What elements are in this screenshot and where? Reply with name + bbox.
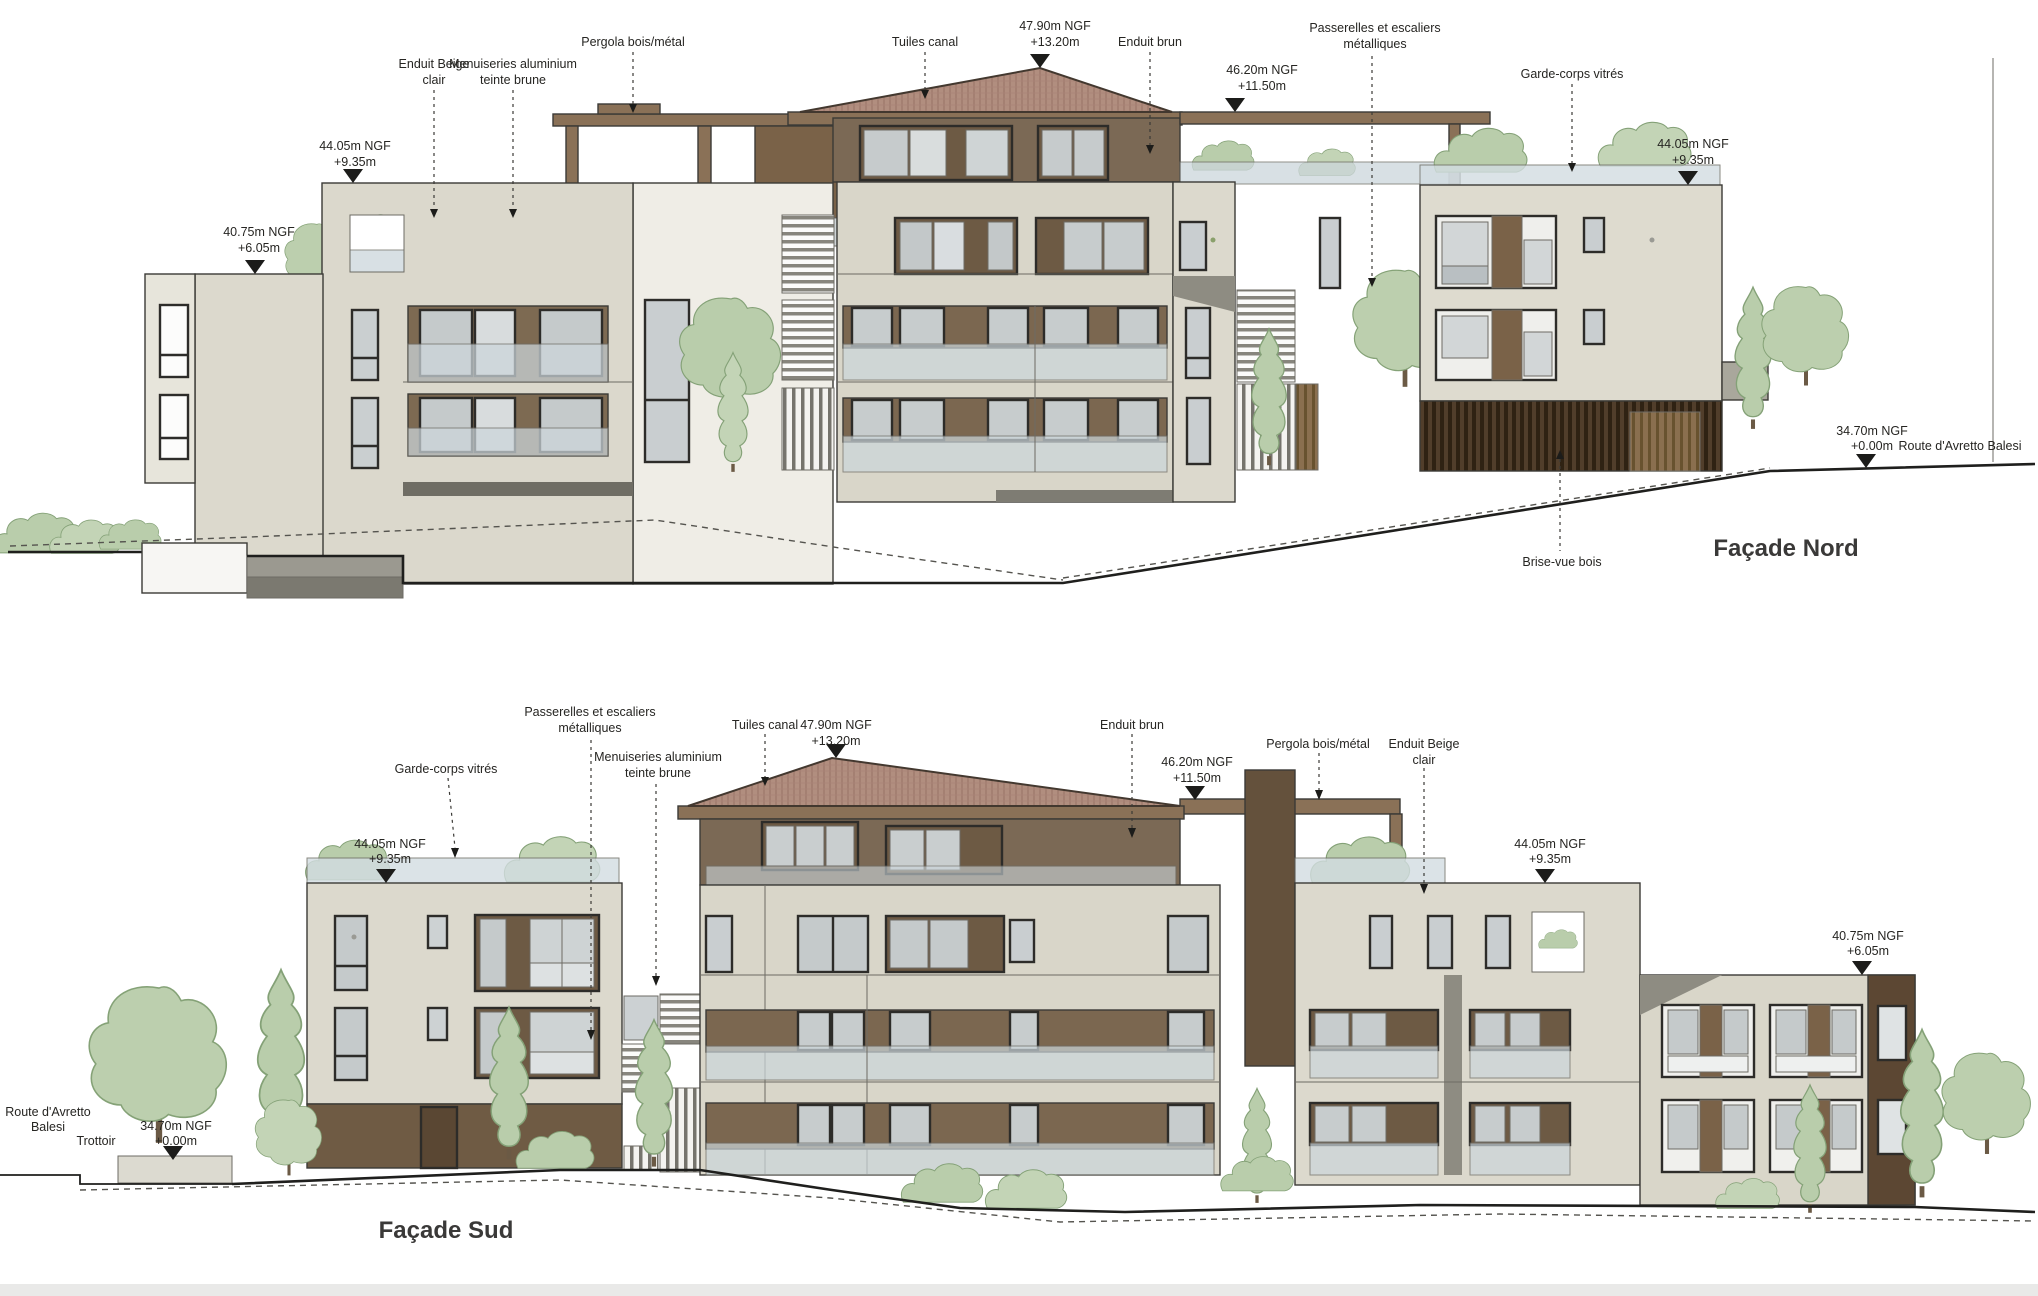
- annotation-garde-corps: Garde-corps vitrés: [1521, 67, 1624, 81]
- annotation-level-3470: 34.70m NGF: [140, 1119, 212, 1133]
- annotation-garde-corps: Garde-corps vitrés: [395, 762, 498, 776]
- annotation-enduit-beige: Enduit Beige: [1389, 737, 1460, 751]
- annotation-level-4620: +11.50m: [1238, 79, 1286, 93]
- annotation-level-4405-left: +9.35m: [334, 155, 376, 169]
- annotation-enduit-beige: clair: [1413, 753, 1436, 767]
- glass-balustrade: [1420, 165, 1720, 185]
- roof-fascia: [678, 806, 1184, 819]
- annotation-route: Route d'Avretto: [5, 1105, 91, 1119]
- annotation-level-4405-right: 44.05m NGF: [1514, 837, 1586, 851]
- annotation-level-4405-left: 44.05m NGF: [319, 139, 391, 153]
- far-right-block: [1640, 975, 1915, 1205]
- right-block: [1420, 122, 1768, 471]
- glass-balustrade: [408, 428, 608, 456]
- annotation-level-4620: +11.50m: [1173, 771, 1221, 785]
- wood-tower: [1245, 770, 1295, 1066]
- elevation-sheet: 44.05m NGF +9.35m 40.75m NGF +6.05m Endu…: [0, 0, 2038, 1296]
- annotation-menuiseries: teinte brune: [480, 73, 546, 87]
- glass-balustrade: [706, 866, 1176, 885]
- annotation-pergola: Pergola bois/métal: [581, 35, 685, 49]
- annotation-route: Route d'Avretto Balesi: [1898, 439, 2021, 453]
- annotation-menuiseries: Menuiseries aluminium: [449, 57, 577, 71]
- glass-balustrade: [843, 436, 1167, 472]
- annotation-tuiles-canal: Tuiles canal: [892, 35, 958, 49]
- annotation-ridge-level: +13.20m: [1031, 35, 1080, 49]
- glass-balustrade: [1295, 858, 1445, 883]
- annotation-level-4620: 46.20m NGF: [1161, 755, 1233, 769]
- left-block: [306, 837, 622, 1169]
- annotation-passerelles: métalliques: [1343, 37, 1406, 51]
- elevation-drawing: 44.05m NGF +9.35m 40.75m NGF +6.05m Endu…: [0, 0, 2038, 1296]
- annotation-ridge-level: 47.90m NGF: [1019, 19, 1091, 33]
- annotation-level-3470: 34.70m NGF: [1836, 424, 1908, 438]
- annotation-level-4075: +6.05m: [1847, 944, 1889, 958]
- annotation-passerelles: métalliques: [558, 721, 621, 735]
- annotation-passerelles: Passerelles et escaliers: [524, 705, 655, 719]
- annotation-level-4405-left: +9.35m: [369, 852, 411, 866]
- annotation-level-4405-left: 44.05m NGF: [354, 837, 426, 851]
- annotation-brise-vue: Brise-vue bois: [1522, 555, 1601, 569]
- annotation-enduit-brun: Enduit brun: [1100, 718, 1164, 732]
- glass-balustrade: [307, 858, 619, 883]
- annotation-level-4075: 40.75m NGF: [1832, 929, 1904, 943]
- annotation-menuiseries: Menuiseries aluminium: [594, 750, 722, 764]
- annotation-enduit-brun: Enduit brun: [1118, 35, 1182, 49]
- annotation-route: Balesi: [31, 1120, 65, 1134]
- annotation-pergola: Pergola bois/métal: [1266, 737, 1370, 751]
- glass-balustrade: [408, 344, 608, 382]
- right-center-block: [1295, 837, 1640, 1185]
- facade-nord-title: Façade Nord: [1713, 535, 1858, 562]
- annotation-level-4405-right: 44.05m NGF: [1657, 137, 1729, 151]
- annotation-trottoir: Trottoir: [76, 1134, 115, 1148]
- annotation-passerelles: Passerelles et escaliers: [1309, 21, 1440, 35]
- annotation-level-4620: 46.20m NGF: [1226, 63, 1298, 77]
- annotation-level-4405-right: +9.35m: [1529, 852, 1571, 866]
- facade-sud-title: Façade Sud: [379, 1217, 514, 1244]
- page-bottom-edge: [0, 1284, 2038, 1296]
- annotation-level-3470: +0.00m: [155, 1134, 197, 1148]
- annotation-level-4405-right: +9.35m: [1672, 153, 1714, 167]
- annotation-level-3470: +0.00m: [1851, 439, 1893, 453]
- annotation-ridge-level: +13.20m: [812, 734, 861, 748]
- pergola-beam: [1180, 112, 1490, 124]
- annotation-enduit-beige: clair: [423, 73, 446, 87]
- annotation-menuiseries: teinte brune: [625, 766, 691, 780]
- sidewalk: [118, 1156, 232, 1183]
- annotation-level-4075: 40.75m NGF: [223, 225, 295, 239]
- annotation-ridge-level: 47.90m NGF: [800, 718, 872, 732]
- glass-balustrade: [843, 344, 1167, 380]
- glass-balustrade: [706, 1046, 1214, 1080]
- glass-balustrade: [1180, 162, 1460, 184]
- door: [421, 1107, 457, 1168]
- annotation-tuiles-canal: Tuiles canal: [732, 718, 798, 732]
- annotation-level-4075: +6.05m: [238, 241, 280, 255]
